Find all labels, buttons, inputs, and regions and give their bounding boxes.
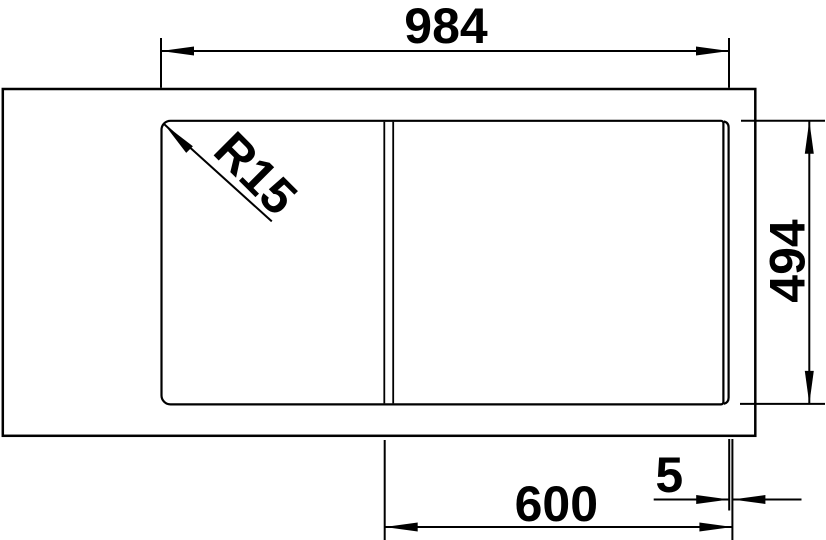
svg-text:5: 5 (655, 447, 683, 503)
svg-text:600: 600 (515, 476, 598, 532)
svg-text:984: 984 (404, 0, 488, 54)
svg-text:494: 494 (760, 219, 816, 303)
